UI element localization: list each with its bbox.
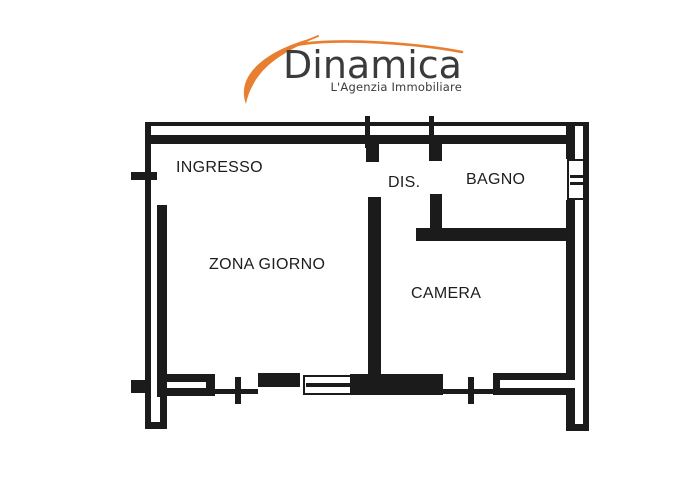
wall-right-inner-upper xyxy=(566,126,575,159)
wall-bottom-right-cap xyxy=(493,373,500,395)
living-window-shutter xyxy=(258,373,300,387)
wall-top-inner xyxy=(151,135,575,144)
room-label-dis: DIS. xyxy=(388,173,420,193)
threshold-tick xyxy=(235,377,241,404)
wall-bottom-right-bottom xyxy=(493,388,575,395)
room-label-ingresso: INGRESSO xyxy=(176,158,263,178)
floor-plan: INGRESSO DIS. BAGNO ZONA GIORNO CAMERA xyxy=(0,0,700,500)
wall-right-inner xyxy=(566,200,575,373)
top-wall-junction-tick xyxy=(365,116,370,148)
wall-bottom-middle xyxy=(350,374,443,395)
living-bedroom-divider-wall xyxy=(368,197,381,390)
wall-bottom-left-cap xyxy=(206,374,215,396)
bathroom-window-hatch xyxy=(570,182,583,185)
wall-left-inner xyxy=(157,205,167,397)
living-window-glass-line xyxy=(306,383,350,387)
bathroom-window xyxy=(567,159,585,200)
left-junction-tick xyxy=(131,380,148,393)
page: Dinamica L'Agenzia Immobiliare xyxy=(0,0,700,500)
wall-bottom-right-top xyxy=(493,373,575,380)
wall-left-stub-cap xyxy=(145,422,167,429)
wall-right-stub-cap xyxy=(566,424,589,431)
wall-right-stub xyxy=(566,395,575,425)
room-label-zona-giorno: ZONA GIORNO xyxy=(209,255,325,275)
entrance-door-tick xyxy=(131,172,157,180)
bathroom-bottom-wall xyxy=(416,228,570,241)
top-wall-junction-tick xyxy=(429,116,434,148)
room-label-camera: CAMERA xyxy=(411,284,481,304)
bathroom-window-hatch xyxy=(570,175,583,178)
wall-left-stub xyxy=(160,397,167,423)
room-label-bagno: BAGNO xyxy=(466,170,525,190)
threshold-tick xyxy=(468,377,474,404)
